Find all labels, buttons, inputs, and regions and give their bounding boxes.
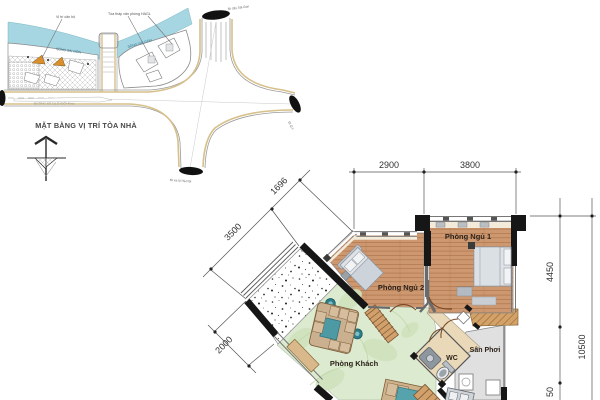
svg-text:2900: 2900 — [379, 160, 399, 170]
svg-text:Tòa tháp văn phòng HAGL: Tòa tháp văn phòng HAGL — [108, 12, 151, 16]
svg-text:MẶT BẰNG VỊ TRÍ TÒA NHÀ: MẶT BẰNG VỊ TRÍ TÒA NHÀ — [35, 121, 137, 130]
svg-text:4450: 4450 — [545, 262, 555, 282]
svg-text:3800: 3800 — [460, 160, 480, 170]
svg-text:Phòng Ngủ 1: Phòng Ngủ 1 — [445, 232, 491, 241]
svg-text:Phòng Khách: Phòng Khách — [330, 359, 379, 368]
svg-text:WC: WC — [446, 355, 458, 362]
svg-text:ĐƯỜNG SỐ 2 (LỘ GIỚI 40m): ĐƯỜNG SỐ 2 (LỘ GIỚI 40m) — [34, 101, 74, 106]
svg-text:Phòng Ngủ 2: Phòng Ngủ 2 — [378, 283, 424, 292]
svg-text:10500: 10500 — [577, 334, 587, 359]
svg-text:Sân Phơi: Sân Phơi — [470, 347, 501, 354]
svg-text:Vị trí căn hộ: Vị trí căn hộ — [56, 15, 75, 19]
svg-text:50: 50 — [545, 387, 555, 397]
